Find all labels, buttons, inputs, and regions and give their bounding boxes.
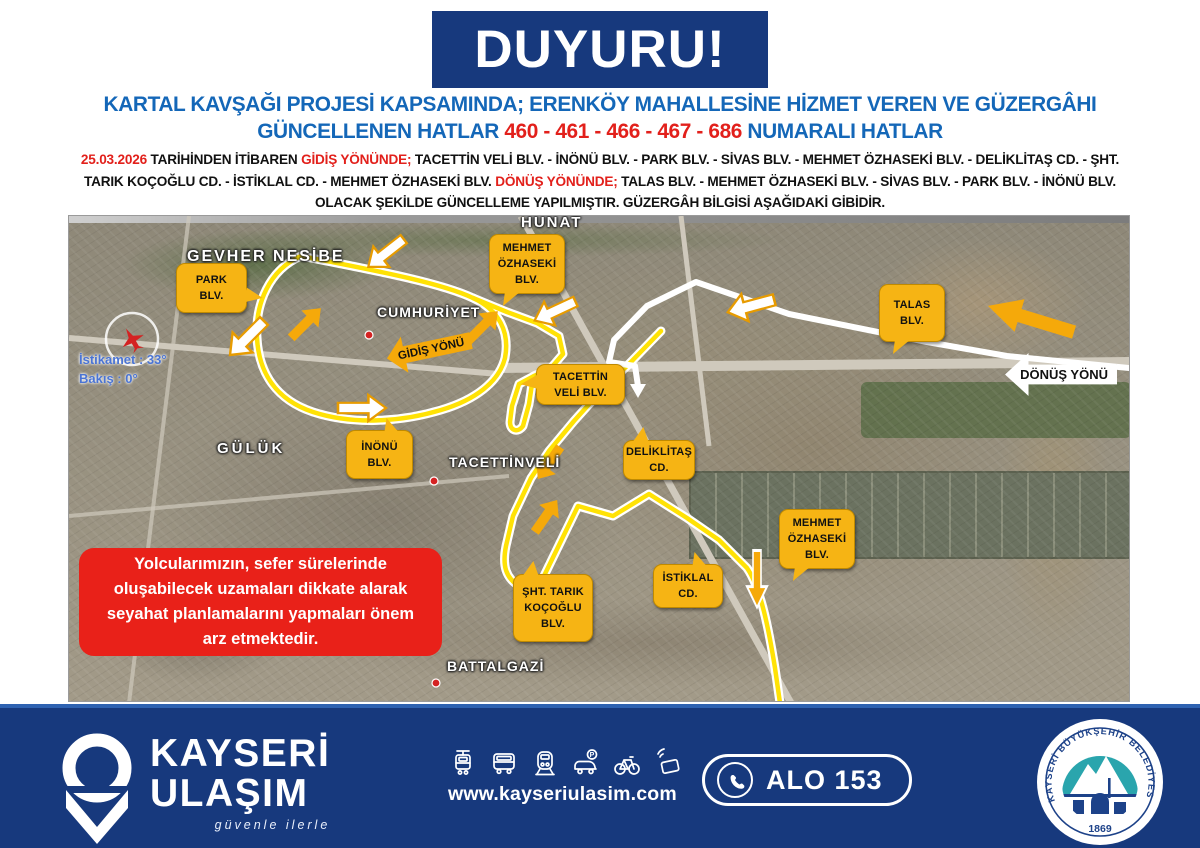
transport-icons: P — [448, 748, 698, 778]
headline-line1: KARTAL KAVŞAĞI PROJESİ KAPSAMINDA; ERENK… — [18, 92, 1182, 117]
contactless-card-icon — [653, 748, 683, 778]
callout-sht-tarik-label: ŞHT. TARIK KOÇOĞLU BLV. — [522, 584, 584, 632]
callout-mehmet-ozhaseki-north-label: MEHMET ÖZHASEKİ BLV. — [498, 240, 556, 288]
passenger-warning-box: Yolcularımızın, sefer sürelerinde oluşab… — [79, 548, 442, 656]
bicycle-icon — [612, 748, 642, 778]
phone-circle — [717, 762, 753, 798]
headline-line2-suffix: NUMARALI HATLAR — [742, 119, 943, 143]
route-arrow-talas — [983, 290, 1079, 349]
footer-bar: KAYSERİ ULAŞIM güvenle ilerle P — [0, 704, 1200, 848]
body-intro: TARİHİNDEN İTİBAREN — [147, 152, 301, 167]
place-label-cumhuriyet: CUMHURİYET — [377, 304, 480, 320]
callout-tacettin-label: TACETTİN VELİ BLV. — [553, 369, 608, 401]
callout-inonu-label: İNÖNÜ BLV. — [361, 439, 397, 471]
donus-route-endpoint-arrow — [630, 384, 646, 398]
phone-icon — [724, 769, 746, 791]
tram-icon — [448, 748, 478, 778]
callout-mehmet-ozhaseki-south-label: MEHMET ÖZHASEKİ BLV. — [788, 515, 846, 563]
viewpoint-heading: İstikamet : 33° — [79, 350, 167, 369]
body-paragraph: 25.03.2026 TARİHİNDEN İTİBAREN GİDİŞ YÖN… — [69, 149, 1131, 214]
effective-date: 25.03.2026 — [81, 152, 147, 167]
viewpoint-tilt: Bakış : 0° — [79, 369, 167, 388]
callout-talas-label: TALAS BLV. — [894, 297, 931, 329]
passenger-warning-text: Yolcularımızın, sefer sürelerinde oluşab… — [97, 552, 424, 652]
kayseri-ulasim-pin-logo — [52, 728, 142, 844]
alo-153-pill: ALO 153 — [702, 754, 912, 806]
brand-ulasim: ULAŞIM — [150, 774, 330, 814]
announcement-poster: DUYURU! KARTAL KAVŞAĞI PROJESİ KAPSAMIND… — [0, 0, 1200, 848]
brand-lockup: KAYSERİ ULAŞIM güvenle ilerle — [150, 734, 330, 832]
seal-year: 1869 — [1088, 823, 1112, 835]
callout-deliklitas-label: DELİKLİTAŞ CD. — [626, 444, 692, 476]
bus-icon — [489, 748, 519, 778]
callout-tacettin-veli-blv: TACETTİN VELİ BLV. — [536, 364, 625, 405]
callout-tail — [381, 418, 398, 432]
callout-park-blv: PARK BLV. — [176, 263, 247, 313]
brand-slogan: güvenle ilerle — [150, 818, 330, 832]
transport-strip: P www.kayseriulasim.com — [448, 748, 698, 806]
municipality-seal: KAYSERİ BÜYÜKŞEHİR BELEDİYESİ 1869 — [1036, 718, 1164, 846]
satellite-route-map: HUNAT GEVHER NESİBE CUMHURİYET TACETTİNV… — [68, 215, 1130, 702]
announcement-banner: DUYURU! — [432, 11, 768, 88]
train-icon — [530, 748, 560, 778]
car-parking-icon: P — [571, 748, 601, 778]
viewpoint-readout: İstikamet : 33° Bakış : 0° — [79, 350, 167, 388]
callout-park-blv-label: PARK BLV. — [196, 272, 227, 304]
place-label-battalgazi: BATTALGAZİ — [447, 658, 544, 674]
headline-line2-prefix: GÜNCELLENEN HATLAR — [257, 119, 504, 143]
callout-sht-tarik-kocoglu-blv: ŞHT. TARIK KOÇOĞLU BLV. — [513, 574, 593, 642]
callout-mehmet-ozhaseki-blv-south: MEHMET ÖZHASEKİ BLV. — [779, 509, 855, 569]
donus-yonu-arrow-label: DÖNÜŞ YÖNÜ — [1020, 367, 1108, 382]
callout-inonu-blv: İNÖNÜ BLV. — [346, 430, 413, 479]
callout-talas-blv: TALAS BLV. — [879, 284, 945, 342]
website-url: www.kayseriulasim.com — [448, 783, 698, 806]
place-label-guluk: GÜLÜK — [217, 440, 285, 457]
donus-direction-label: DÖNÜŞ YÖNÜNDE; — [495, 174, 617, 189]
banner-title: DUYURU! — [474, 19, 725, 80]
headline-line2: GÜNCELLENEN HATLAR 460 - 461 - 466 - 467… — [18, 119, 1182, 144]
route-arrow-ne — [283, 300, 330, 347]
route-numbers: 460 - 461 - 466 - 467 - 686 — [504, 119, 742, 143]
svg-text:P: P — [590, 752, 595, 759]
gidis-direction-label: GİDİŞ YÖNÜNDE; — [301, 152, 411, 167]
brand-kayseri: KAYSERİ — [150, 734, 330, 774]
callout-istiklal-label: İSTİKLAL CD. — [662, 570, 713, 602]
callout-tail — [519, 375, 540, 394]
callout-mehmet-ozhaseki-blv-north: MEHMET ÖZHASEKİ BLV. — [489, 234, 565, 294]
callout-deliklitas-cd: DELİKLİTAŞ CD. — [623, 440, 695, 480]
alo-153-label: ALO 153 — [766, 765, 883, 796]
callout-istiklal-cd: İSTİKLAL CD. — [653, 564, 723, 608]
place-label-tacettinveli: TACETTİNVELİ — [449, 454, 560, 470]
place-label-hunat: HUNAT — [521, 215, 582, 231]
